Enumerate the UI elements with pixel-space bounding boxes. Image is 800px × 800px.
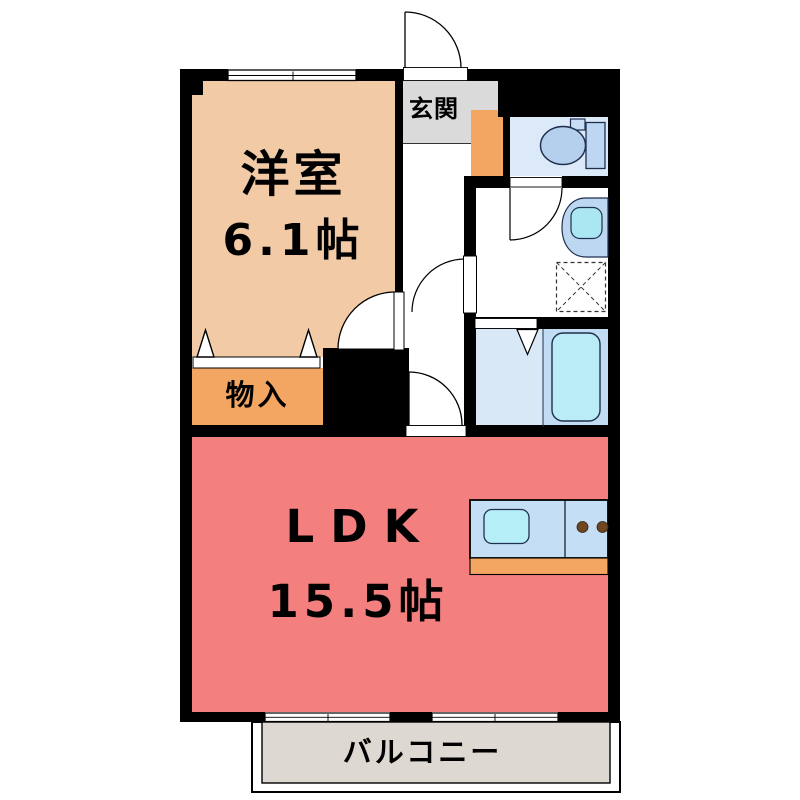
wall-bottom-b — [390, 712, 432, 722]
window-ldk-right — [432, 713, 558, 722]
room-washroom — [476, 188, 608, 317]
wall-washroom-bath — [464, 317, 620, 329]
floorplan-canvas: 洋室 6.1帖 玄関 物入 LDK 15.5帖 バルコニー — [0, 0, 800, 800]
wall-toilet-bottom-a — [464, 176, 510, 188]
washroom-hall-door — [412, 256, 477, 313]
entrance-door — [404, 12, 468, 81]
wall-hall-washroom-b — [464, 313, 476, 437]
entrance-step — [471, 110, 504, 178]
entrance-label: 玄関 — [403, 97, 465, 121]
wall-hall-washroom-a — [464, 188, 476, 256]
wall-bottom-a — [180, 712, 265, 722]
room-bathroom-right — [543, 329, 608, 427]
wall-bottom-c — [558, 712, 620, 722]
wall-ldk-top — [180, 425, 620, 437]
balcony-label: バルコニー — [300, 738, 545, 767]
storage-label: 物入 — [192, 381, 323, 410]
ldk-area-label: 15.5帖 — [238, 579, 478, 624]
wall-right — [608, 69, 620, 722]
wall-storage-mass — [323, 348, 409, 428]
window-ldk-left — [265, 713, 390, 722]
western-room-label: 洋室 — [192, 150, 395, 199]
ldk-label: LDK — [240, 504, 480, 549]
wall-top-c — [467, 69, 620, 81]
window-western-room — [228, 70, 356, 81]
room-bathroom-left — [476, 329, 543, 427]
wall-step-toilet — [503, 110, 510, 176]
wall-western-right-upper — [395, 81, 403, 292]
room-toilet — [510, 115, 608, 176]
wall-left — [180, 69, 192, 722]
wall-toilet-bottom-b — [562, 176, 608, 188]
wall-top-right-mass — [498, 81, 608, 117]
western-room-area-label: 6.1帖 — [192, 219, 395, 263]
wall-corner-notch — [192, 81, 203, 95]
wall-top-b — [356, 69, 404, 81]
